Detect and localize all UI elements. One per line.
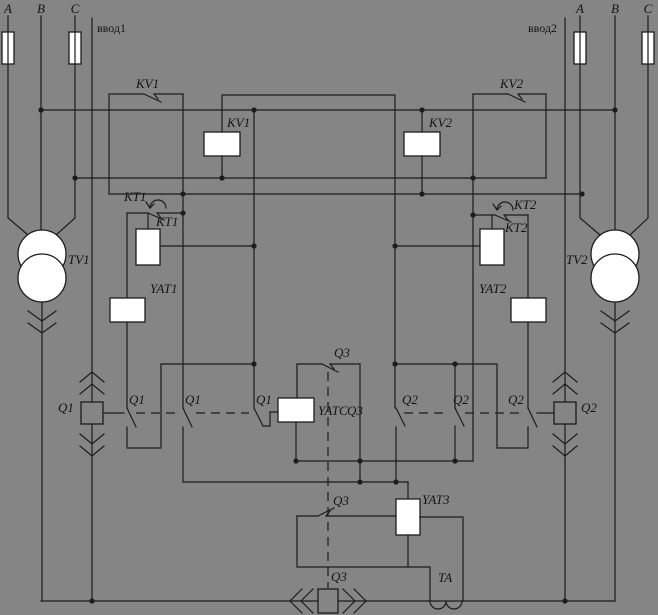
q3-breaker-box bbox=[318, 589, 338, 613]
q2-breaker-box bbox=[554, 402, 576, 424]
lower-tie-section: Q3 YAT3 TA Q3 bbox=[290, 482, 463, 613]
yat2-label: YAT2 bbox=[479, 281, 507, 296]
kv2-contact-label: KV2 bbox=[499, 76, 524, 91]
q3-breaker-label: Q3 bbox=[331, 569, 347, 584]
phase-a-left-label: A bbox=[3, 1, 12, 16]
tv1-label: TV1 bbox=[68, 252, 90, 267]
yat3-right-lead bbox=[420, 517, 463, 601]
tv2-secondary-winding bbox=[591, 254, 639, 302]
yat1-label: YAT1 bbox=[150, 281, 178, 296]
tv2-label: TV2 bbox=[566, 252, 588, 267]
kv2-coil-label: KV2 bbox=[428, 115, 453, 130]
yat3-coil-box bbox=[396, 499, 420, 535]
kt1-delay-symbol bbox=[146, 200, 166, 208]
q3-link-label: Q3 bbox=[347, 403, 363, 418]
kt2-coil-label: KT2 bbox=[504, 220, 528, 235]
feeder1-label: ввод1 bbox=[97, 21, 126, 35]
q3-top-contact-label: Q3 bbox=[334, 345, 350, 360]
kt2-relay: KT2 KT2 bbox=[395, 197, 537, 265]
kv1-coil-label: KV1 bbox=[226, 115, 250, 130]
kt2-delay-symbol bbox=[493, 202, 513, 210]
left-feeder: A B C ввод1 bbox=[2, 1, 126, 601]
phase-c-left-label: C bbox=[71, 1, 80, 16]
kv2-coil-box bbox=[404, 132, 440, 156]
phase-c-right-label: C bbox=[644, 1, 653, 16]
q1-aux3-out bbox=[263, 412, 278, 426]
schematic-page: A B C ввод1 A B C ввод2 TV1 bbox=[0, 0, 658, 615]
q1-aux2-blade bbox=[183, 408, 192, 427]
right-feeder: A B C ввод2 bbox=[528, 1, 654, 601]
yat3-label: YAT3 bbox=[422, 492, 450, 507]
phase-a-right-label: A bbox=[575, 1, 584, 16]
kv2-relay: KV2 KV2 bbox=[404, 76, 546, 461]
q1-breaker-box bbox=[81, 402, 103, 424]
kt2-contact-label: KT2 bbox=[513, 197, 537, 212]
yatc-coil-box bbox=[278, 398, 314, 422]
tv1-secondary-winding bbox=[18, 254, 66, 302]
kt1-coil-label: KT1 bbox=[155, 214, 178, 229]
tv2-transformer: TV2 bbox=[566, 230, 639, 333]
tie-circuit: Q3 YATC Q3 bbox=[183, 345, 473, 588]
q1-breaker-label: Q1 bbox=[58, 400, 74, 415]
q1-aux1-blade bbox=[127, 408, 136, 427]
yatc-label: YATC bbox=[318, 403, 348, 418]
q3-lower-contact bbox=[297, 508, 396, 516]
q2-aux-contacts: Q2 Q2 Q2 bbox=[395, 364, 554, 482]
kt1-contact-label: KT1 bbox=[123, 189, 146, 204]
q2-breaker: Q2 bbox=[553, 372, 597, 456]
ta-winding bbox=[430, 601, 462, 609]
q2-aux2-blade bbox=[455, 408, 464, 426]
q2-aux1-blade bbox=[396, 408, 405, 426]
control-buses bbox=[41, 110, 615, 194]
q2-aux3-blade bbox=[528, 408, 537, 427]
q1-aux3-label: Q1 bbox=[256, 392, 272, 407]
q2-aux2-label: Q2 bbox=[453, 392, 469, 407]
kt1-relay: KT1 KT1 bbox=[123, 189, 254, 265]
q1-aux3-blade bbox=[254, 408, 263, 426]
q2-aux3-label: Q2 bbox=[508, 392, 524, 407]
kt2-coil-box bbox=[480, 229, 504, 265]
q1-aux1-label: Q1 bbox=[129, 392, 145, 407]
q3-lower-contact-label: Q3 bbox=[333, 493, 349, 508]
kv1-coil-box bbox=[204, 132, 240, 156]
ta-label: TA bbox=[438, 570, 452, 585]
feeder2-label: ввод2 bbox=[528, 21, 557, 35]
q2-breaker-label: Q2 bbox=[581, 400, 597, 415]
kt1-coil-box bbox=[136, 229, 160, 265]
kv1-coil-top-link bbox=[222, 95, 395, 408]
q1-aux2-label: Q1 bbox=[185, 392, 201, 407]
q2-aux1-label: Q2 bbox=[402, 392, 418, 407]
tv1-transformer: TV1 bbox=[18, 230, 90, 333]
q1-aux-contacts: Q1 Q1 Q1 bbox=[103, 110, 278, 482]
phase-b-right-label: B bbox=[611, 1, 619, 16]
ats-two-feeder-schematic: A B C ввод1 A B C ввод2 TV1 bbox=[0, 0, 658, 615]
q1-breaker: Q1 bbox=[58, 372, 104, 456]
kv1-contact-label: KV1 bbox=[135, 76, 159, 91]
phase-b-left-label: B bbox=[37, 1, 45, 16]
yat2-coil-box bbox=[511, 298, 546, 322]
yat1-coil-box bbox=[110, 298, 145, 322]
